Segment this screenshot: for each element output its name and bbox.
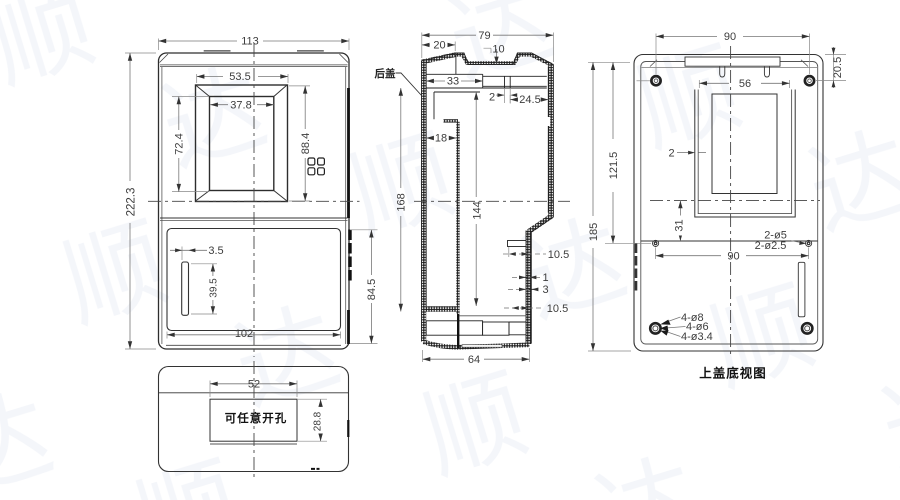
svg-text:10.5: 10.5 xyxy=(548,249,569,261)
svg-text:84.5: 84.5 xyxy=(366,279,378,300)
svg-text:102: 102 xyxy=(235,328,253,340)
svg-text:79: 79 xyxy=(478,30,490,42)
svg-text:18: 18 xyxy=(435,133,447,145)
svg-text:10.5: 10.5 xyxy=(547,303,568,315)
svg-text:168: 168 xyxy=(396,193,408,211)
svg-text:4-ø3.4: 4-ø3.4 xyxy=(681,331,713,343)
svg-text:144: 144 xyxy=(472,201,484,219)
svg-text:90: 90 xyxy=(727,251,739,263)
svg-text:可任意开孔: 可任意开孔 xyxy=(225,411,288,425)
svg-text:53.5: 53.5 xyxy=(229,71,250,83)
svg-text:52: 52 xyxy=(248,378,260,390)
svg-text:121.5: 121.5 xyxy=(608,152,620,180)
svg-text:1: 1 xyxy=(542,272,548,284)
svg-text:上盖底视图: 上盖底视图 xyxy=(699,366,767,381)
svg-text:后盖: 后盖 xyxy=(375,67,396,80)
svg-text:37.8: 37.8 xyxy=(230,99,251,111)
svg-text:90: 90 xyxy=(724,31,736,43)
svg-text:10: 10 xyxy=(492,44,504,56)
svg-text:33: 33 xyxy=(447,76,459,88)
svg-text:64: 64 xyxy=(468,354,480,366)
svg-text:222.3: 222.3 xyxy=(126,188,138,217)
svg-text:20: 20 xyxy=(433,40,445,52)
svg-text:39.5: 39.5 xyxy=(208,278,219,298)
svg-text:113: 113 xyxy=(241,36,259,48)
svg-text:72.4: 72.4 xyxy=(173,133,185,154)
svg-text:28.8: 28.8 xyxy=(313,411,324,431)
svg-text:2-ø2.5: 2-ø2.5 xyxy=(755,240,787,252)
svg-text:88.4: 88.4 xyxy=(300,133,312,154)
svg-text:20.5: 20.5 xyxy=(832,57,844,78)
svg-text:3.5: 3.5 xyxy=(208,245,223,257)
svg-text:31: 31 xyxy=(674,219,686,231)
svg-text:2: 2 xyxy=(668,148,674,160)
svg-text:24.5: 24.5 xyxy=(519,94,540,106)
svg-text:2: 2 xyxy=(489,92,495,104)
svg-text:185: 185 xyxy=(588,223,600,241)
svg-text:56: 56 xyxy=(739,78,751,90)
svg-text:3: 3 xyxy=(542,284,548,296)
